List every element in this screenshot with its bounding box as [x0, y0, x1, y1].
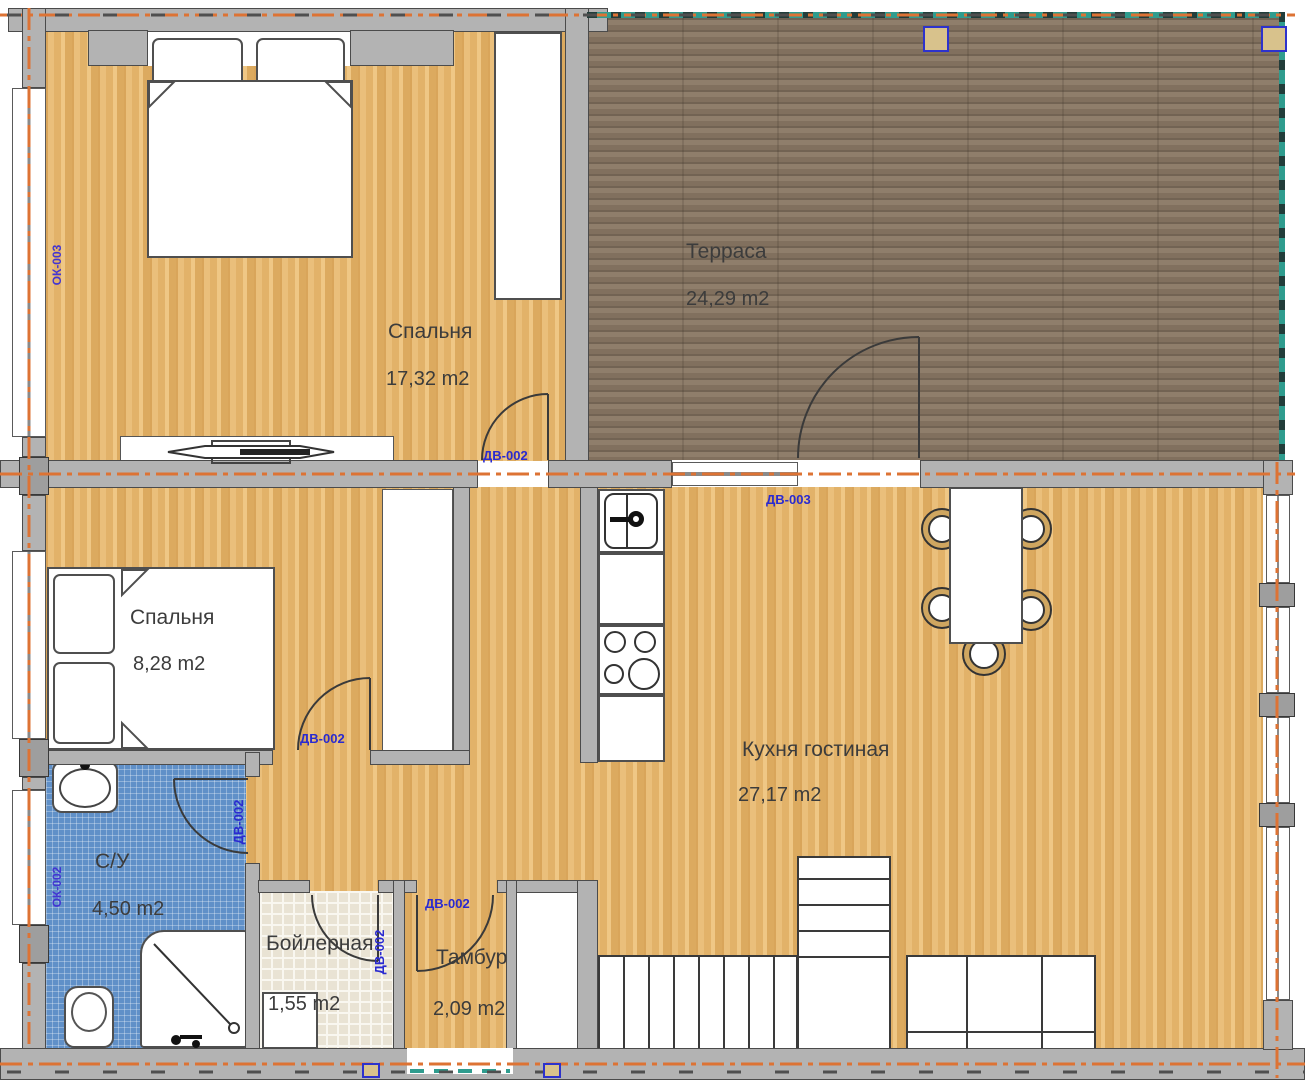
burner-1 [604, 631, 626, 653]
wall-left-d [22, 777, 46, 790]
bed2-pillow-bottom [53, 662, 115, 744]
section-marker-2 [543, 1063, 561, 1078]
bedroom1-name: Спальня [388, 320, 472, 344]
kitchen-counter-1 [598, 553, 665, 625]
door-label-bedroom1: ДВ-002 [483, 448, 528, 463]
wall-tambour-closet [506, 880, 517, 1050]
tambour-area: 2,09 m2 [433, 998, 505, 1021]
terrace-edge-right [1279, 12, 1285, 460]
stairs-upper-flight [797, 856, 891, 1050]
window-ok002 [12, 790, 46, 925]
wall-left-c [22, 495, 46, 551]
wall-right-a [1263, 460, 1293, 495]
window-right-4 [1266, 827, 1290, 1000]
pier-left-1 [19, 457, 49, 495]
window-label-ok003: ОК-003 [50, 220, 64, 310]
wall-mid-b [548, 460, 672, 488]
wall-niche-left [88, 30, 148, 66]
bed1 [147, 80, 353, 258]
wall-niche-right [350, 30, 454, 66]
bedroom1-area: 17,32 m2 [386, 368, 469, 391]
sofa [906, 955, 1096, 1050]
wall-closet-right [577, 880, 598, 1050]
terrace-edge-top [587, 12, 1283, 18]
burner-3 [604, 664, 624, 684]
bath-sink-bowl [59, 768, 111, 808]
burner-2 [634, 631, 656, 653]
terrace-post-1 [923, 26, 949, 52]
window-bedroom2 [12, 551, 46, 739]
wall-bedroom2-bottom-a [22, 750, 273, 765]
door-label-tambour: ДВ-002 [425, 896, 470, 911]
terrace-name: Терраса [686, 240, 767, 264]
door-label-bathroom: ДВ-002 [231, 777, 247, 867]
wall-mid-c [920, 460, 1293, 488]
pier-right-2 [1259, 693, 1295, 717]
wall-bottom [0, 1048, 1305, 1080]
kitchen-counter-2 [598, 695, 665, 762]
bathroom-name: С/У [95, 850, 129, 874]
door1-threshold [478, 461, 548, 487]
wardrobe-bedroom1 [494, 32, 562, 300]
wall-boiler-tambour [393, 880, 405, 1050]
wall-mid-a [0, 460, 478, 488]
window-right-2 [1266, 607, 1290, 693]
door-label-boiler: ДВ-002 [372, 907, 388, 997]
door-label-bedroom2: ДВ-002 [300, 731, 345, 746]
kitchen-area: 27,17 m2 [738, 784, 821, 807]
wall-bedroom2-right [453, 487, 470, 752]
wall-top [8, 8, 608, 32]
burner-4 [628, 658, 660, 690]
terrace-post-2 [1261, 26, 1287, 52]
entry-teal-line [410, 1069, 510, 1073]
window-right-1 [1266, 495, 1290, 583]
terrace-deck [587, 18, 1283, 460]
dining-table [949, 487, 1023, 644]
wall-left-b [22, 437, 46, 457]
bed2-pillow-top [53, 574, 115, 654]
section-marker-1 [362, 1063, 380, 1078]
tambour-name: Тамбур [436, 946, 507, 970]
window-ok003 [12, 88, 46, 437]
wall-hall-bottom-a [258, 880, 310, 893]
floor-plan: Спальня 17,32 m2 Терраса 24,29 m2 Спальн… [0, 0, 1305, 1080]
terrace-door-threshold [798, 461, 920, 487]
wall-bedroom2-bottom-b [370, 750, 470, 765]
pier-left-3 [19, 925, 49, 963]
wall-left-a [22, 8, 46, 88]
kitchen-name: Кухня гостиная [742, 738, 889, 762]
bathroom-area: 4,50 m2 [92, 898, 164, 921]
kitchen-sink-bowl [604, 493, 658, 549]
window-label-ok002: ОК-002 [50, 842, 64, 932]
window-terrace-wall [672, 462, 798, 486]
pier-left-2 [19, 739, 49, 777]
stairs-lower-flight [598, 955, 798, 1050]
boiler-name: Бойлерная [266, 932, 373, 956]
wall-left-e [22, 963, 46, 1050]
window-right-3 [1266, 717, 1290, 803]
terrace-area: 24,29 m2 [686, 288, 769, 311]
pier-right-3 [1259, 803, 1295, 827]
wall-bedroom1-terrace [565, 8, 589, 462]
wall-bath-right-a [245, 752, 260, 777]
boiler-area: 1,55 m2 [268, 993, 340, 1016]
entry-closet [514, 891, 580, 1050]
pier-right-1 [1259, 583, 1295, 607]
door-label-terrace: ДВ-003 [766, 492, 811, 507]
bedroom2-name: Спальня [130, 606, 214, 630]
wall-right-b [1263, 1000, 1293, 1050]
toilet-bowl [71, 992, 107, 1032]
shower [140, 930, 248, 1048]
wall-kitchen [580, 487, 598, 763]
wardrobe-bedroom2 [382, 489, 453, 751]
bedroom2-area: 8,28 m2 [133, 653, 205, 676]
